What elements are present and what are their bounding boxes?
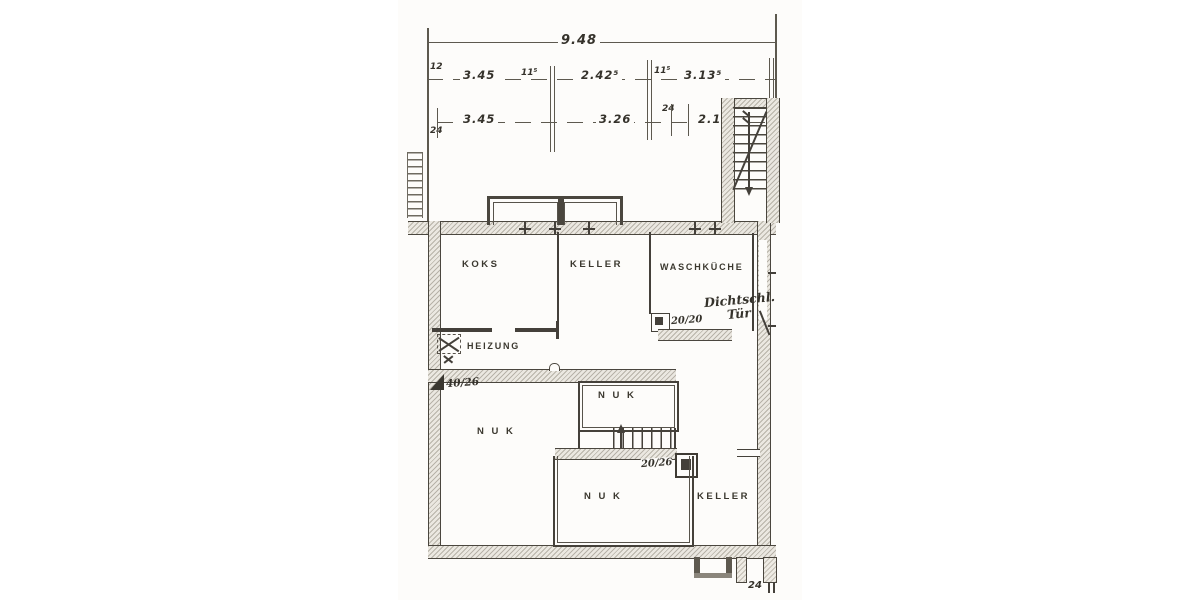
door-leaf-line (752, 233, 754, 331)
room-label-nuk-upper: N U K (598, 390, 636, 401)
window-symbol (709, 228, 721, 230)
dimension-witness-right-dbl (769, 58, 774, 102)
dim-24-mid: 24 (661, 104, 676, 114)
room-label-nuk-lower: N U K (584, 491, 622, 502)
wall-stub-keller-lower (737, 449, 760, 457)
wall-heizung-a (432, 328, 492, 332)
bottom-bay-sill (694, 573, 732, 578)
note-20-26: 20/26 (641, 457, 673, 470)
dimension-witness-24b (688, 104, 689, 136)
bottom-tick (768, 582, 770, 593)
dimension-line-total (427, 42, 776, 43)
room-label-waschkueche: WASCHKÜCHE (660, 262, 744, 272)
room-nuk-lower-inner (557, 456, 690, 543)
dim-3135: 3.13⁵ (681, 68, 725, 82)
room-label-keller-upper: KELLER (570, 259, 623, 270)
note-20-20: 20/20 (671, 314, 703, 327)
dim-2425: 2.42⁵ (578, 68, 622, 82)
room-nuk-lower (553, 456, 694, 547)
window-symbol (583, 228, 595, 230)
dimension-witness-mid1 (550, 66, 555, 152)
stairwell-right-wall (766, 98, 780, 223)
wall-exterior-bottom (428, 545, 776, 559)
wall-koks-keller (557, 232, 559, 331)
wall-tick-right-1 (768, 272, 776, 274)
wall-tick-right-2 (768, 325, 776, 327)
pillar-20-20-fill (655, 317, 663, 325)
pipe-symbol (549, 363, 560, 371)
wall-heizung-end-tick (556, 321, 559, 339)
note-dichtschluss-2: Tür (726, 305, 751, 322)
dimension-witness-24a (671, 104, 672, 136)
bottom-tick (773, 582, 775, 593)
light-well-bay-2 (558, 196, 623, 225)
light-well-bay-1 (487, 196, 564, 225)
window-symbol (549, 228, 561, 230)
stairs-mid-arrow-head (617, 424, 625, 433)
dimension-witness-right (775, 14, 777, 104)
dim-115-left: 11⁵ (520, 68, 538, 78)
room-label-heizung: HEIZUNG (467, 341, 520, 351)
dim-345-upper: 3.45 (460, 68, 498, 82)
floor-plan-scan: 9.48 12 3.45 11⁵ 2.42⁵ 11⁵ 3.13⁵ 24 3.45… (0, 0, 1200, 600)
chimney-symbol (437, 334, 461, 354)
lintel-triangle (430, 374, 444, 390)
dim-326: 3.26 (596, 112, 634, 126)
dimension-tick (437, 108, 438, 138)
window-symbol (689, 228, 701, 230)
room-label-nuk-left: N U K (477, 426, 515, 437)
dim-wall-12: 12 (429, 62, 444, 72)
bottom-stub-2 (763, 557, 777, 583)
light-well-bay-2-inner (564, 202, 617, 225)
dim-345-lower: 3.45 (460, 112, 498, 126)
note-40-26: 40/26 (446, 376, 480, 390)
dim-total: 9.48 (558, 33, 600, 48)
room-label-koks: KOKS (462, 259, 499, 270)
room-label-keller-lower: KELLER (697, 491, 750, 502)
room-nuk-upper (578, 381, 679, 432)
dimension-witness-mid2 (647, 60, 652, 140)
dimension-witness-left (427, 28, 429, 222)
door-opening-right-wall (759, 240, 767, 320)
dim-24-bottom: 24 (747, 580, 763, 591)
wall-heizung-b (515, 328, 559, 332)
bottom-stub-1 (736, 557, 747, 583)
window-symbol (519, 228, 531, 230)
stairs-upper-arrow-head (745, 187, 753, 196)
wall-keller-waschkueche (649, 232, 651, 314)
wall-waschkueche-bottom (658, 329, 732, 341)
dim-115-right: 11⁵ (653, 66, 671, 76)
light-shaft-ladder (407, 152, 423, 218)
